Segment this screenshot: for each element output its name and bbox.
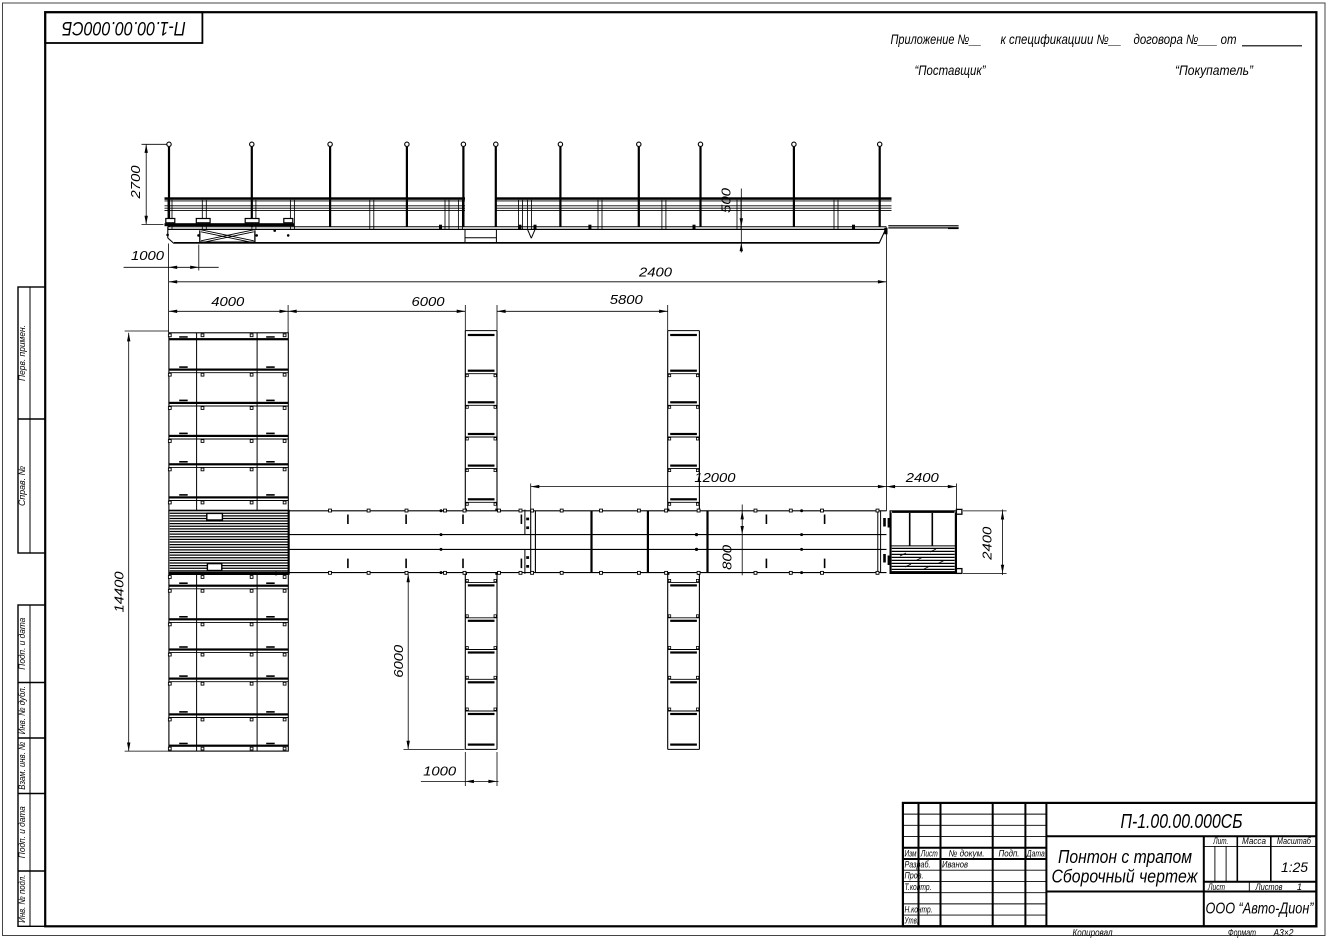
svg-text:1:25: 1:25 [1281,860,1308,875]
svg-text:2400: 2400 [638,265,673,280]
svg-text:1: 1 [1297,882,1302,892]
svg-text:Лист: Лист [920,848,938,858]
svg-text:ООО “Авто-Дион”: ООО “Авто-Дион” [1206,901,1315,918]
svg-text:А3×2: А3×2 [1273,928,1294,939]
svg-text:Перв. примен.: Перв. примен. [17,325,27,381]
svg-text:14400: 14400 [112,571,127,613]
svg-text:Понтон с трапом: Понтон с трапом [1058,847,1192,867]
svg-text:“Поставщик”: “Поставщик” [915,63,987,78]
svg-text:Сборочный чертеж: Сборочный чертеж [1052,867,1199,887]
svg-text:Пров.: Пров. [905,871,924,881]
svg-text:12000: 12000 [694,470,736,485]
svg-text:4000: 4000 [211,294,245,309]
svg-text:5800: 5800 [610,292,644,307]
svg-text:Разраб.: Разраб. [905,859,931,869]
svg-text:Листов: Листов [1255,882,1283,892]
svg-text:Масса: Масса [1242,836,1266,846]
svg-text:6000: 6000 [391,644,406,678]
svg-text:Масштаб: Масштаб [1277,836,1312,846]
svg-text:800: 800 [720,544,735,570]
svg-text:Подп.: Подп. [999,848,1020,858]
svg-text:договора №___ от: договора №___ от [1134,32,1237,47]
svg-text:2700: 2700 [128,165,143,200]
svg-text:№ докум.: № докум. [949,848,985,858]
svg-text:к спецификациии №__: к спецификациии №__ [1001,32,1122,47]
svg-text:Иванов: Иванов [942,859,968,869]
svg-text:Справ. №: Справ. № [17,466,27,506]
svg-text:Взам. инв. №: Взам. инв. № [17,742,27,790]
svg-text:500: 500 [719,187,734,213]
svg-text:6000: 6000 [412,294,446,309]
svg-text:Подп. и дата: Подп. и дата [17,618,27,670]
svg-text:Копировал: Копировал [1073,928,1113,939]
svg-text:П-1.00.00.000СБ: П-1.00.00.000СБ [1121,811,1243,833]
svg-text:Лит.: Лит. [1213,836,1229,846]
svg-text:Изм: Изм [905,848,917,858]
svg-text:Инв. № подл.: Инв. № подл. [17,875,27,923]
svg-text:Формат: Формат [1228,928,1256,939]
svg-text:Т.контр.: Т.контр. [905,882,932,892]
svg-text:Утв.: Утв. [904,916,919,926]
svg-text:2400: 2400 [980,526,995,561]
svg-text:1000: 1000 [423,763,457,778]
svg-text:Инв. № дубл.: Инв. № дубл. [17,686,27,734]
svg-text:Лист: Лист [1207,882,1225,892]
svg-text:Н.контр.: Н.контр. [905,904,933,914]
svg-text:1000: 1000 [131,248,165,263]
svg-text:Подп. и дата: Подп. и дата [17,806,27,858]
svg-text:П-1.00.00.000СБ: П-1.00.00.000СБ [62,17,186,38]
svg-text:Приложение №__: Приложение №__ [891,32,982,47]
svg-text:2400: 2400 [905,470,940,485]
svg-text:“Покупатель”: “Покупатель” [1175,63,1254,78]
svg-text:Дата: Дата [1026,848,1045,858]
